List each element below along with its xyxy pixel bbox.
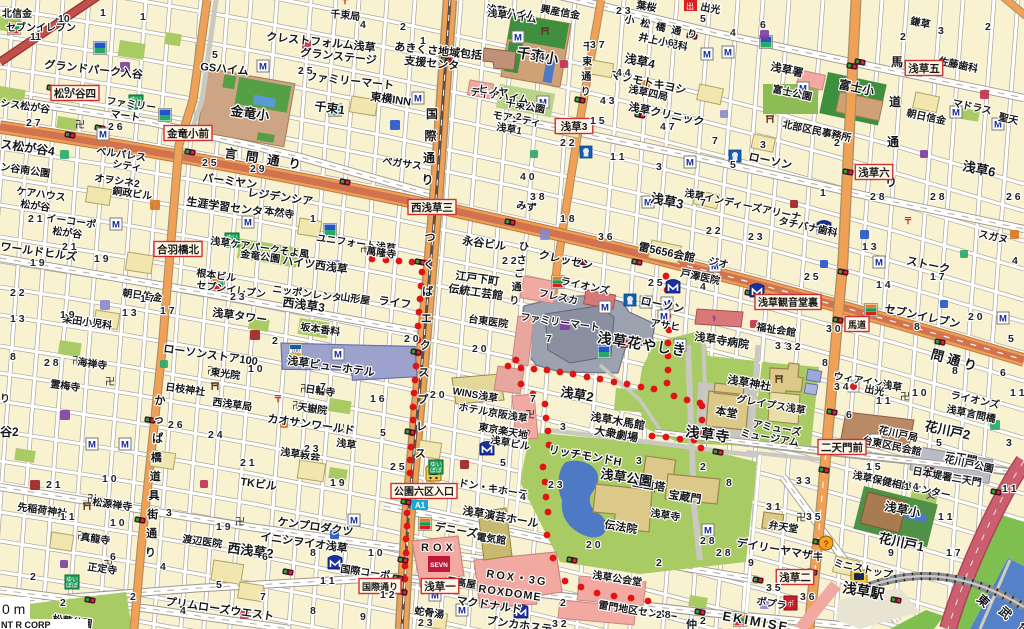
svg-text:道: 道	[150, 469, 161, 483]
svg-text:M: M	[121, 440, 129, 451]
svg-text:2 9: 2 9	[250, 163, 265, 175]
svg-text:2 5: 2 5	[298, 65, 313, 77]
svg-text:1 1: 1 1	[60, 511, 75, 523]
svg-text:1 9: 1 9	[330, 477, 345, 489]
svg-text:ROX: ROX	[421, 542, 457, 554]
svg-text:5: 5	[1008, 333, 1014, 345]
svg-text:ひ: ひ	[519, 242, 529, 253]
svg-text:4 7: 4 7	[660, 121, 675, 133]
svg-text:7: 7	[530, 393, 536, 405]
svg-text:り: り	[0, 393, 10, 405]
svg-text:4 4: 4 4	[616, 67, 631, 79]
svg-text:際: 際	[424, 128, 437, 143]
svg-text:通: 通	[146, 527, 157, 540]
svg-text:M: M	[875, 258, 883, 269]
svg-text:2: 2	[656, 557, 662, 569]
svg-text:2 2: 2 2	[10, 287, 25, 299]
svg-text:1 5: 1 5	[590, 115, 605, 127]
svg-text:4: 4	[180, 605, 186, 617]
svg-text:3 1: 3 1	[766, 501, 781, 513]
svg-text:2 0: 2 0	[472, 343, 487, 355]
svg-text:3 4: 3 4	[834, 381, 849, 393]
svg-text:束: 束	[582, 55, 593, 68]
svg-text:り: り	[145, 546, 156, 559]
svg-text:り: り	[581, 86, 591, 98]
svg-text:3: 3	[760, 139, 766, 151]
svg-text:8: 8	[914, 321, 920, 333]
svg-text:浅草一: 浅草一	[424, 580, 456, 593]
svg-text:2 3: 2 3	[304, 443, 319, 455]
svg-text:2 8: 2 8	[656, 609, 671, 621]
svg-text:M: M	[99, 130, 107, 141]
svg-text:3 8: 3 8	[530, 191, 545, 203]
svg-text:〒: 〒	[340, 0, 349, 6]
svg-text:?: ?	[823, 539, 829, 549]
svg-text:2 0: 2 0	[404, 333, 419, 345]
svg-text:2: 2	[400, 21, 406, 33]
svg-text:M: M	[112, 220, 120, 231]
svg-text:M: M	[350, 516, 358, 527]
svg-text:4 3: 4 3	[600, 95, 615, 107]
svg-text:2 8: 2 8	[870, 191, 885, 203]
svg-text:西浅草三: 西浅草三	[411, 201, 453, 214]
svg-text:1: 1	[820, 187, 826, 199]
svg-text:ポ: ポ	[787, 600, 794, 608]
svg-text:2: 2	[700, 615, 706, 627]
svg-text:街: 街	[146, 507, 158, 521]
svg-text:8: 8	[310, 605, 316, 617]
svg-text:〒: 〒	[273, 394, 282, 404]
svg-text:ぱ: ぱ	[152, 431, 163, 445]
svg-text:6: 6	[110, 551, 116, 563]
svg-text:M: M	[686, 158, 694, 169]
svg-text:2 8: 2 8	[716, 547, 731, 559]
svg-text:2 4: 2 4	[208, 429, 223, 441]
svg-text:1 1: 1 1	[1010, 387, 1024, 399]
svg-text:M: M	[601, 303, 609, 314]
svg-text:ぽぽ: ぽぽ	[66, 582, 78, 590]
svg-text:合羽橋北: 合羽橋北	[156, 243, 199, 256]
svg-text:9: 9	[888, 547, 894, 559]
svg-text:9: 9	[360, 611, 366, 623]
svg-text:2: 2	[516, 111, 522, 123]
svg-text:ク: ク	[420, 339, 431, 352]
svg-text:1 4: 1 4	[904, 481, 919, 493]
svg-text:っ: っ	[153, 414, 164, 426]
svg-text:4: 4	[1012, 255, 1018, 267]
svg-text:2 5: 2 5	[804, 271, 819, 283]
svg-text:2 2: 2 2	[502, 255, 517, 267]
svg-text:2 1: 2 1	[240, 457, 255, 469]
svg-text:卍: 卍	[75, 119, 85, 131]
svg-text:さ: さ	[517, 255, 527, 267]
svg-text:A1: A1	[415, 501, 426, 510]
svg-text:北信金: 北信金	[2, 7, 33, 20]
svg-text:浅草3: 浅草3	[561, 120, 588, 133]
svg-text:NT R CORP: NT R CORP	[1, 620, 51, 629]
svg-text:4: 4	[360, 19, 366, 31]
svg-text:7: 7	[712, 135, 718, 147]
svg-text:2: 2	[900, 31, 906, 43]
svg-text:M: M	[244, 218, 252, 229]
svg-text:3 5: 3 5	[806, 511, 821, 523]
svg-text:M: M	[414, 94, 422, 105]
svg-text:3: 3	[1006, 437, 1012, 449]
svg-text:1 1: 1 1	[1002, 483, 1017, 495]
svg-text:3 0: 3 0	[826, 323, 841, 335]
svg-text:7: 7	[260, 591, 266, 603]
svg-text:2 1: 2 1	[28, 213, 43, 225]
svg-text:松が谷四: 松が谷四	[54, 87, 96, 100]
svg-text:り: り	[509, 295, 519, 307]
svg-text:1 7: 1 7	[946, 547, 961, 559]
svg-text:4: 4	[700, 281, 706, 293]
svg-text:M: M	[703, 50, 711, 61]
svg-text:M: M	[334, 350, 342, 361]
svg-text:ば: ば	[422, 284, 433, 298]
svg-text:1 0: 1 0	[368, 547, 383, 559]
svg-text:仲: 仲	[686, 617, 697, 629]
svg-text:2: 2	[60, 597, 66, 609]
svg-text:浅草六: 浅草六	[858, 166, 890, 179]
svg-text:5: 5	[216, 579, 222, 591]
svg-text:3 7: 3 7	[590, 39, 605, 51]
svg-text:ス: ス	[419, 367, 430, 379]
svg-text:1 9: 1 9	[30, 257, 45, 269]
svg-text:出: 出	[686, 1, 694, 11]
svg-text:M: M	[259, 62, 267, 73]
svg-text:4: 4	[160, 561, 166, 573]
svg-text:6: 6	[668, 37, 674, 49]
svg-text:つ: つ	[425, 232, 436, 244]
svg-text:2 2: 2 2	[706, 225, 721, 237]
svg-text:6: 6	[760, 19, 766, 31]
svg-text:1: 1	[140, 11, 146, 23]
svg-text:橋: 橋	[151, 450, 163, 464]
svg-text:卍: 卍	[235, 516, 245, 528]
svg-text:10: 10	[58, 13, 70, 25]
svg-text:国: 国	[426, 107, 438, 121]
svg-text:2 8: 2 8	[700, 535, 715, 547]
svg-text:プ: プ	[417, 392, 429, 406]
svg-text:7: 7	[546, 333, 552, 345]
svg-text:3: 3	[636, 455, 642, 467]
svg-text:1 1: 1 1	[610, 151, 625, 163]
svg-text:2: 2	[834, 137, 840, 149]
svg-text:3: 3	[656, 161, 662, 173]
svg-text:2 6: 2 6	[1006, 191, 1021, 203]
svg-text:1 8: 1 8	[560, 213, 575, 225]
svg-text:卍: 卍	[105, 376, 115, 388]
svg-text:2 7: 2 7	[26, 117, 41, 129]
svg-text:馬道: 馬道	[847, 319, 866, 330]
svg-text:2 3: 2 3	[616, 5, 631, 17]
svg-text:M: M	[514, 33, 522, 44]
svg-text:5: 5	[700, 13, 706, 25]
svg-text:4: 4	[520, 491, 526, 503]
svg-text:具: 具	[149, 489, 160, 502]
svg-text:1: 1	[420, 35, 426, 47]
svg-text:1 1: 1 1	[938, 511, 953, 523]
svg-text:3 5: 3 5	[766, 582, 781, 594]
svg-text:浅草観音堂裏: 浅草観音堂裏	[758, 296, 819, 309]
svg-text:2 3: 2 3	[418, 617, 433, 629]
svg-text:3 3: 3 3	[796, 475, 811, 487]
svg-text:1: 1	[310, 213, 316, 225]
svg-text:2: 2	[985, 21, 991, 33]
svg-text:2: 2	[560, 597, 566, 609]
svg-text:二天門前: 二天門前	[821, 441, 863, 454]
svg-text:ぽぽ: ぽぽ	[430, 467, 442, 475]
svg-text:ゆい: ゆい	[66, 577, 78, 584]
svg-text:5: 5	[212, 49, 218, 61]
svg-text:か: か	[155, 394, 166, 407]
svg-text:5: 5	[500, 457, 506, 469]
svg-text:2 5: 2 5	[202, 157, 217, 169]
svg-text:馬: 馬	[891, 55, 903, 69]
svg-text:2: 2	[272, 335, 278, 347]
svg-text:3 2: 3 2	[786, 341, 801, 353]
svg-text:浅草二: 浅草二	[779, 571, 811, 584]
svg-text:2 6: 2 6	[168, 419, 183, 431]
svg-text:3 6: 3 6	[598, 231, 613, 243]
svg-text:通: 通	[887, 134, 899, 149]
svg-text:1 0: 1 0	[912, 387, 927, 399]
svg-text:5: 5	[730, 159, 736, 171]
svg-text:7: 7	[700, 197, 706, 209]
svg-text:5: 5	[936, 437, 942, 449]
svg-text:2 1: 2 1	[46, 479, 61, 491]
svg-text:1 1: 1 1	[320, 575, 335, 587]
svg-text:⚕: ⚕	[712, 314, 716, 323]
svg-text:ス: ス	[415, 448, 426, 460]
svg-text:通: 通	[423, 150, 435, 165]
svg-text:1 9: 1 9	[216, 521, 231, 533]
svg-text:3 2: 3 2	[552, 618, 567, 629]
svg-text:7: 7	[320, 381, 326, 393]
svg-text:り: り	[421, 173, 433, 187]
svg-text:2 0: 2 0	[586, 539, 601, 551]
svg-text:ご: ご	[514, 267, 525, 280]
svg-text:3 6: 3 6	[800, 591, 815, 603]
svg-text:1 9: 1 9	[60, 309, 75, 321]
svg-text:9: 9	[64, 85, 70, 97]
svg-text:2: 2	[130, 591, 136, 603]
svg-text:1 4: 1 4	[876, 279, 891, 291]
svg-text:金竜小前: 金竜小前	[166, 127, 209, 140]
svg-text:1 3: 1 3	[122, 307, 137, 319]
svg-text:6: 6	[846, 409, 852, 421]
svg-text:2 3: 2 3	[748, 231, 763, 243]
svg-text:6: 6	[262, 551, 268, 563]
svg-text:SEVN: SEVN	[430, 562, 448, 569]
svg-text:4 0: 4 0	[520, 171, 535, 183]
svg-text:3: 3	[560, 421, 566, 433]
svg-text:1 0: 1 0	[110, 517, 125, 529]
svg-text:浅草五: 浅草五	[908, 62, 940, 75]
svg-text:8: 8	[310, 547, 316, 559]
svg-text:4: 4	[730, 27, 736, 39]
svg-text:通: 通	[512, 282, 522, 294]
svg-text:2 1: 2 1	[62, 241, 77, 253]
svg-text:M: M	[88, 440, 96, 451]
svg-text:2 5: 2 5	[648, 277, 663, 289]
svg-text:2 3: 2 3	[230, 291, 245, 303]
svg-text:道: 道	[889, 94, 901, 109]
svg-text:卍: 卍	[796, 512, 806, 524]
svg-text:3 4: 3 4	[530, 51, 545, 63]
svg-text:2 2: 2 2	[560, 137, 575, 149]
svg-text:1 1: 1 1	[876, 395, 891, 407]
svg-text:通: 通	[581, 71, 591, 83]
svg-text:3: 3	[166, 507, 172, 519]
svg-text:M: M	[724, 48, 732, 59]
svg-text:2 3: 2 3	[548, 479, 563, 491]
svg-text:2 6: 2 6	[108, 121, 123, 133]
svg-text:く: く	[423, 258, 434, 271]
svg-text:2: 2	[700, 461, 706, 473]
svg-text:8: 8	[726, 477, 732, 489]
svg-text:1 7: 1 7	[160, 305, 175, 317]
svg-text:1 7: 1 7	[930, 271, 945, 283]
svg-text:8: 8	[10, 351, 16, 363]
svg-text:2: 2	[30, 571, 36, 583]
svg-text:ゆい: ゆい	[430, 462, 442, 469]
svg-text:〒: 〒	[903, 216, 912, 226]
svg-text:公園六区入口: 公園六区入口	[394, 485, 454, 498]
svg-text:レ: レ	[416, 421, 427, 433]
svg-text:M: M	[999, 314, 1007, 325]
svg-text:1 2: 1 2	[380, 589, 395, 601]
svg-text:谷2: 谷2	[0, 424, 19, 439]
svg-text:2 8: 2 8	[930, 191, 945, 203]
svg-text:9: 9	[748, 557, 754, 569]
svg-text:2 5: 2 5	[390, 461, 405, 473]
svg-text:エ: エ	[421, 313, 432, 325]
svg-text:2 8: 2 8	[44, 357, 59, 369]
svg-text:2 0: 2 0	[430, 389, 445, 401]
svg-text:8: 8	[952, 365, 958, 377]
svg-text:6: 6	[1000, 367, 1006, 379]
svg-text:1 6: 1 6	[370, 393, 385, 405]
svg-text:8: 8	[822, 357, 828, 369]
svg-text:0 m: 0 m	[2, 601, 25, 617]
svg-text:100: 100	[291, 349, 300, 355]
svg-text:5: 5	[380, 427, 386, 439]
svg-text:1 7: 1 7	[140, 293, 155, 305]
svg-text:1 0: 1 0	[248, 363, 263, 375]
svg-text:3: 3	[938, 25, 944, 37]
svg-text:1 3: 1 3	[862, 241, 877, 253]
svg-text:1 0: 1 0	[102, 473, 117, 485]
svg-text:1 5: 1 5	[866, 461, 881, 473]
svg-text:1: 1	[100, 7, 106, 19]
svg-text:2 0: 2 0	[968, 311, 983, 323]
svg-text:1 3: 1 3	[10, 313, 25, 325]
svg-text:1 9: 1 9	[94, 253, 109, 265]
svg-text:11: 11	[30, 31, 41, 43]
svg-text:卍: 卍	[900, 391, 910, 403]
